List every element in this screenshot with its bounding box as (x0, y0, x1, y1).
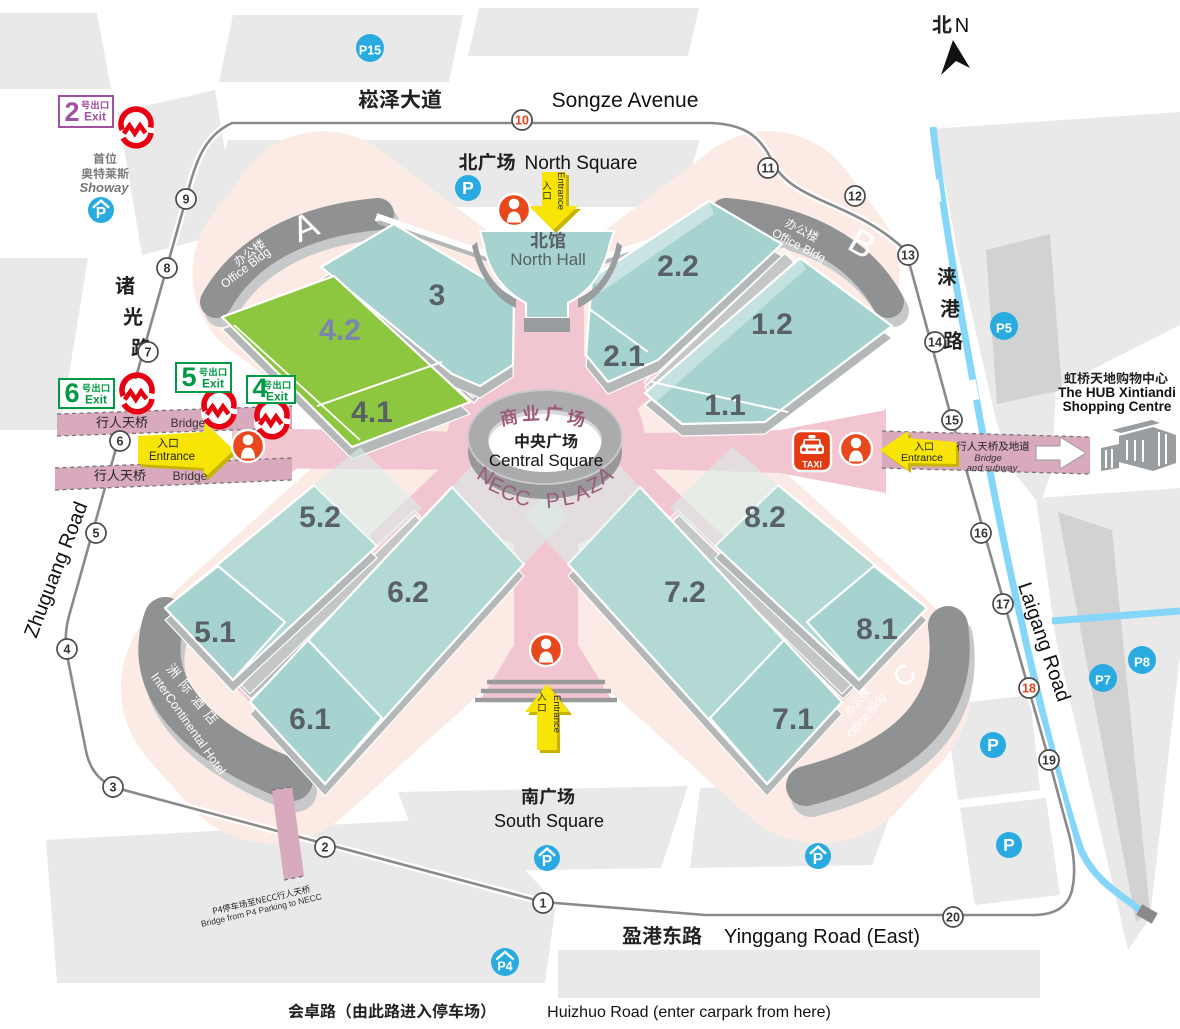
svg-text:16: 16 (974, 526, 988, 540)
svg-text:2: 2 (322, 840, 329, 854)
svg-text:7.2: 7.2 (664, 576, 706, 609)
svg-text:2.2: 2.2 (657, 250, 699, 283)
svg-text:Entrance: Entrance (551, 695, 562, 733)
svg-text:P15: P15 (359, 44, 381, 58)
svg-text:The HUB Xintiandi: The HUB Xintiandi (1058, 385, 1176, 400)
svg-text:17: 17 (996, 597, 1010, 611)
svg-text:N: N (955, 15, 969, 37)
svg-text:7.1: 7.1 (772, 703, 814, 736)
svg-text:9: 9 (183, 192, 190, 206)
svg-text:8.1: 8.1 (856, 613, 898, 646)
svg-text:P5: P5 (996, 321, 1012, 336)
svg-text:P4: P4 (497, 960, 512, 974)
svg-text:P7: P7 (1095, 673, 1111, 688)
svg-text:P: P (542, 853, 552, 870)
svg-text:P: P (987, 735, 999, 755)
svg-text:6: 6 (117, 434, 124, 448)
svg-text:5.1: 5.1 (194, 616, 236, 649)
svg-text:Entrance: Entrance (901, 452, 943, 464)
svg-text:1.2: 1.2 (751, 308, 793, 341)
svg-text:8: 8 (164, 261, 171, 275)
svg-text:Exit: Exit (266, 390, 288, 404)
svg-text:13: 13 (901, 248, 915, 262)
svg-text:North Hall: North Hall (510, 250, 586, 269)
svg-text:TAXI: TAXI (802, 460, 822, 470)
svg-text:6.1: 6.1 (289, 703, 331, 736)
svg-text:1.1: 1.1 (704, 389, 746, 422)
svg-text:Exit: Exit (85, 393, 107, 407)
svg-text:Entrance: Entrance (149, 451, 195, 463)
svg-text:5.2: 5.2 (299, 501, 341, 534)
svg-text:P: P (96, 205, 106, 222)
svg-text:4.1: 4.1 (351, 396, 393, 429)
svg-text:Yinggang Road (East): Yinggang Road (East) (724, 926, 920, 948)
svg-text:P: P (1003, 835, 1015, 855)
svg-text:7: 7 (145, 345, 152, 359)
svg-text:2: 2 (64, 97, 79, 127)
svg-text:Exit: Exit (202, 377, 224, 391)
svg-text:P: P (813, 851, 823, 868)
svg-text:18: 18 (1022, 681, 1036, 695)
svg-text:19: 19 (1042, 753, 1056, 767)
svg-text:6.2: 6.2 (387, 576, 429, 609)
svg-text:6: 6 (64, 378, 79, 408)
svg-text:4: 4 (64, 642, 71, 656)
svg-text:Bridge: Bridge (171, 416, 206, 430)
svg-text:12: 12 (848, 189, 862, 203)
svg-text:3: 3 (110, 780, 117, 794)
svg-text:Shopping Centre: Shopping Centre (1063, 399, 1172, 414)
svg-text:and subway: and subway (967, 463, 1019, 474)
svg-text:P8: P8 (1134, 655, 1150, 670)
svg-text:20: 20 (946, 910, 960, 924)
svg-text:3: 3 (429, 279, 446, 312)
svg-text:8.2: 8.2 (744, 501, 786, 534)
svg-text:Songze Avenue: Songze Avenue (552, 89, 699, 112)
svg-text:14: 14 (928, 335, 942, 349)
svg-text:P: P (462, 178, 474, 198)
svg-text:5: 5 (181, 362, 196, 392)
svg-text:Huizhuo Road (enter carpark fr: Huizhuo Road (enter carpark from here) (547, 1004, 831, 1021)
svg-text:4.2: 4.2 (319, 314, 361, 347)
svg-text:P: P (545, 489, 560, 513)
svg-text:11: 11 (761, 161, 774, 175)
svg-text:10: 10 (515, 113, 529, 127)
svg-text:South Square: South Square (494, 811, 604, 831)
svg-text:Entrance: Entrance (555, 172, 566, 210)
svg-text:15: 15 (945, 413, 959, 427)
svg-text:1: 1 (540, 896, 547, 910)
svg-text:Exit: Exit (84, 110, 106, 124)
svg-text:5: 5 (93, 526, 100, 540)
svg-text:North Square: North Square (524, 153, 637, 174)
svg-text:Bridge: Bridge (173, 469, 208, 483)
svg-text:2.1: 2.1 (603, 340, 645, 373)
svg-text:Central Square: Central Square (489, 451, 603, 470)
svg-text:Showay: Showay (79, 180, 129, 195)
